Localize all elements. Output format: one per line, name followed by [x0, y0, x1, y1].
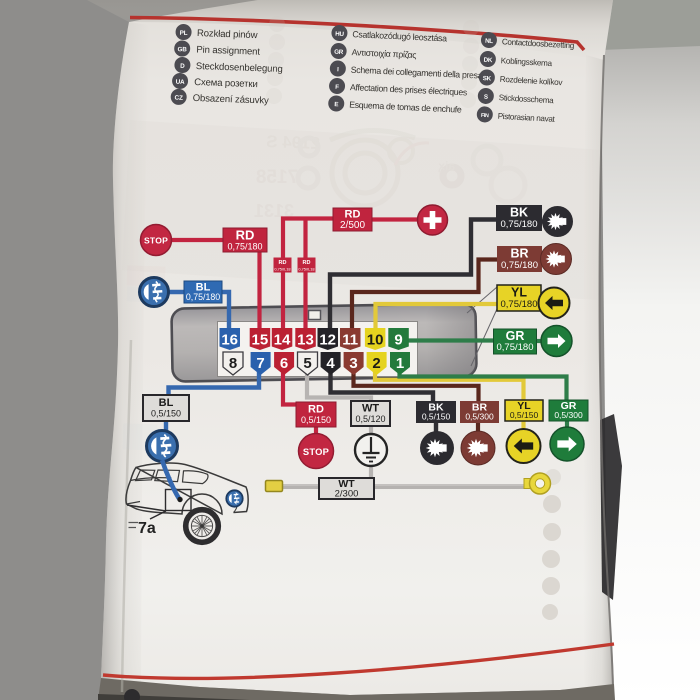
svg-text:HU: HU — [335, 31, 345, 38]
svg-text:2: 2 — [372, 355, 380, 372]
svg-text:10: 10 — [367, 332, 384, 349]
svg-text:1: 1 — [396, 355, 404, 372]
svg-text:2/300: 2/300 — [335, 489, 359, 500]
svg-text:FIN: FIN — [481, 113, 489, 119]
svg-text:0,75/180: 0,75/180 — [501, 219, 538, 230]
svg-text:0,5/150: 0,5/150 — [422, 412, 451, 422]
svg-text:RD: RD — [345, 209, 361, 221]
svg-text:BR: BR — [510, 247, 528, 261]
svg-text:DK: DK — [483, 57, 493, 65]
svg-text:BL: BL — [159, 397, 174, 409]
svg-text:0,75/0,18: 0,75/0,18 — [298, 267, 314, 272]
svg-text:0,5/150: 0,5/150 — [510, 410, 539, 420]
svg-text:CZ: CZ — [174, 95, 183, 102]
svg-text:PL: PL — [180, 30, 188, 37]
svg-text:0,5/300: 0,5/300 — [554, 410, 583, 420]
svg-text:Rozkład pinów: Rozkład pinów — [197, 28, 258, 41]
svg-text:0,5/150: 0,5/150 — [301, 415, 331, 425]
svg-text:0,75/180: 0,75/180 — [501, 260, 538, 271]
svg-text:0,5/150: 0,5/150 — [151, 409, 181, 419]
svg-text:0,5/300: 0,5/300 — [465, 412, 494, 422]
svg-text:0,75/0,18: 0,75/0,18 — [274, 267, 290, 272]
svg-text:8: 8 — [229, 355, 237, 372]
svg-text:Pin assignment: Pin assignment — [196, 44, 260, 57]
svg-text:BK: BK — [510, 206, 528, 220]
svg-text:7a: 7a — [138, 520, 156, 537]
svg-text:0,5/120: 0,5/120 — [355, 414, 385, 424]
svg-text:7: 7 — [256, 355, 264, 372]
svg-text:5: 5 — [303, 355, 311, 372]
svg-text:RD: RD — [308, 404, 324, 416]
svg-text:0,75/180: 0,75/180 — [227, 242, 262, 252]
svg-text:GB: GB — [177, 46, 187, 53]
svg-text:RD: RD — [303, 260, 311, 266]
svg-text:14: 14 — [274, 332, 291, 349]
svg-text:YL: YL — [511, 286, 527, 300]
svg-text:STOP: STOP — [303, 446, 329, 457]
svg-text:15: 15 — [252, 332, 269, 349]
svg-text:GR: GR — [506, 329, 525, 343]
svg-text:13: 13 — [297, 332, 314, 349]
svg-text:NL: NL — [485, 38, 494, 45]
svg-text:UA: UA — [176, 79, 186, 86]
svg-text:2/500: 2/500 — [340, 220, 365, 231]
svg-text:12: 12 — [319, 332, 336, 349]
svg-text:6: 6 — [280, 355, 288, 372]
svg-text:0,75/180: 0,75/180 — [497, 342, 534, 353]
svg-text:0,75/180: 0,75/180 — [186, 292, 220, 302]
svg-text:11: 11 — [342, 332, 358, 349]
svg-text:0,75/180: 0,75/180 — [501, 299, 538, 310]
svg-text:SK: SK — [483, 75, 492, 82]
svg-text:9: 9 — [394, 332, 402, 349]
svg-text:RD: RD — [236, 228, 255, 243]
svg-text:16: 16 — [221, 332, 238, 349]
svg-text:Схема розетки: Схема розетки — [194, 77, 258, 90]
svg-text:E: E — [334, 101, 338, 108]
svg-text:RD: RD — [279, 260, 287, 266]
svg-text:3: 3 — [349, 355, 357, 372]
svg-text:WT: WT — [362, 403, 379, 415]
svg-text:STOP: STOP — [144, 236, 168, 246]
svg-text:S: S — [484, 94, 488, 101]
svg-text:4: 4 — [326, 355, 335, 372]
svg-text:GR: GR — [334, 49, 344, 56]
